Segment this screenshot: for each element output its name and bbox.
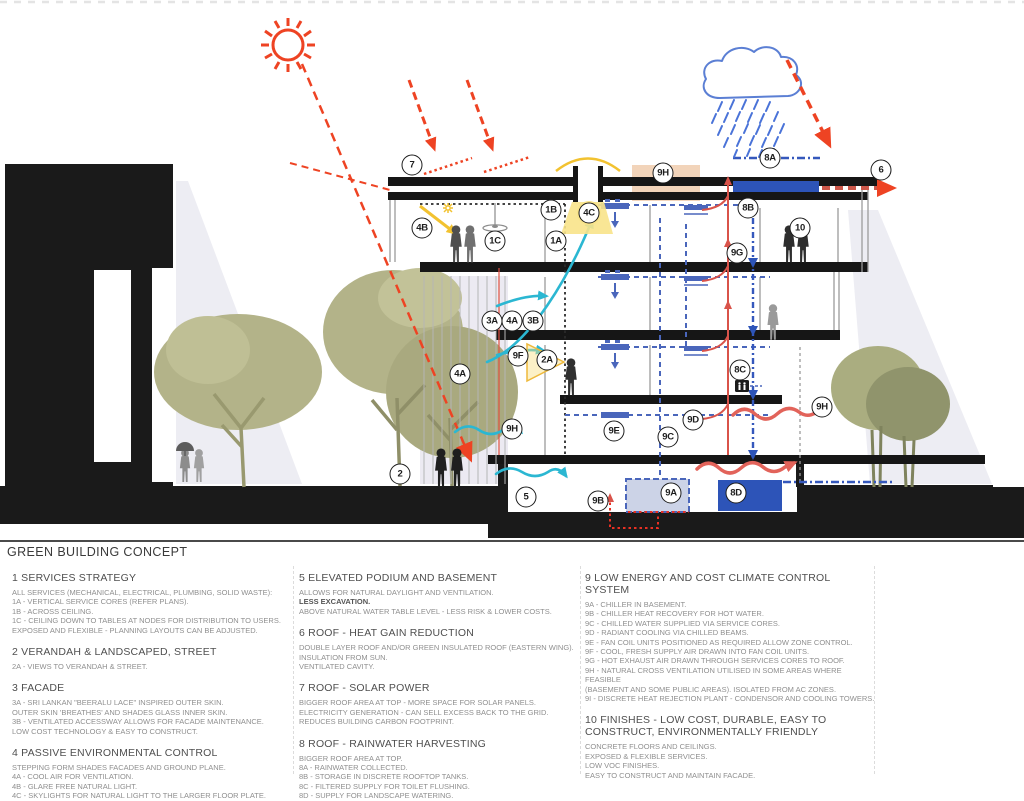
legend-section-heading: 7 ROOF - SOLAR POWER bbox=[299, 682, 579, 694]
legend-line: 1A - VERTICAL SERVICE CORES (REFER PLANS… bbox=[12, 597, 292, 606]
rooftop-tank bbox=[733, 181, 819, 192]
legend-line: 4A - COOL AIR FOR VENTILATION. bbox=[12, 772, 292, 781]
callout-5: 5 bbox=[516, 487, 537, 508]
legend-section-heading: 9 LOW ENERGY AND COST CLIMATE CONTROL SY… bbox=[585, 572, 877, 596]
callout-9E: 9E bbox=[604, 421, 625, 442]
legend-section-heading: 10 FINISHES - LOW COST, DURABLE, EASY TO… bbox=[585, 714, 877, 738]
callout-2: 2 bbox=[390, 464, 411, 485]
sunbeam-roof-edge bbox=[290, 163, 390, 190]
legend-section-heading: 4 PASSIVE ENVIRONMENTAL CONTROL bbox=[12, 747, 292, 759]
legend-line: 1C - CEILING DOWN TO TABLES AT NODES FOR… bbox=[12, 616, 292, 625]
legend-line: 8A - RAINWATER COLLECTED. bbox=[299, 763, 579, 772]
legend-line: 2A - VIEWS TO VERANDAH & STREET. bbox=[12, 662, 292, 671]
callout-4C: 4C bbox=[579, 203, 600, 224]
ceiling-fan-icon bbox=[483, 203, 507, 231]
callout-9F: 9F bbox=[508, 346, 529, 367]
legend-line: DOUBLE LAYER ROOF AND/OR GREEN INSULATED… bbox=[299, 643, 579, 652]
legend-section-heading: 5 ELEVATED PODIUM AND BASEMENT bbox=[299, 572, 579, 584]
callout-2A: 2A bbox=[537, 350, 558, 371]
solar-panel-arrows bbox=[409, 80, 530, 174]
legend-col-1: 5 ELEVATED PODIUM AND BASEMENTALLOWS FOR… bbox=[299, 561, 579, 801]
callout-9D: 9D bbox=[683, 410, 704, 431]
callout-1B: 1B bbox=[541, 200, 562, 221]
callout-4A: 4A bbox=[502, 311, 523, 332]
person-icon bbox=[450, 225, 461, 262]
legend-line: 3B - VENTILATED ACCESSWAY ALLOWS FOR FAC… bbox=[12, 717, 292, 726]
legend-line: 9B - CHILLER HEAT RECOVERY FOR HOT WATER… bbox=[585, 609, 877, 618]
legend-line: EXPOSED AND FLEXIBLE - PLANNING LAYOUTS … bbox=[12, 626, 292, 635]
hot-exhaust-system bbox=[702, 178, 728, 455]
callout-6: 6 bbox=[871, 160, 892, 181]
legend-section: 10 FINISHES - LOW COST, DURABLE, EASY TO… bbox=[585, 714, 877, 780]
legend-line: (BASEMENT AND SOME PUBLIC AREAS). ISOLAT… bbox=[585, 685, 877, 694]
legend-section: 7 ROOF - SOLAR POWERBIGGER ROOF AREA AT … bbox=[299, 682, 579, 726]
sun-icon bbox=[261, 18, 315, 72]
callout-9H: 9H bbox=[502, 419, 523, 440]
callout-8C: 8C bbox=[730, 360, 751, 381]
adjacent-building bbox=[5, 164, 173, 524]
callout-9B: 9B bbox=[588, 491, 609, 512]
legend-line: EXPOSED & FLEXIBLE SERVICES. bbox=[585, 752, 877, 761]
legend-line: 8D - SUPPLY FOR LANDSCAPE WATERING. bbox=[299, 791, 579, 800]
legend-section: 1 SERVICES STRATEGYALL SERVICES (MECHANI… bbox=[12, 572, 292, 635]
legend-col-2: 9 LOW ENERGY AND COST CLIMATE CONTROL SY… bbox=[585, 561, 877, 780]
legend-line: 3A - SRI LANKAN "BEERALU LACE" INSPIRED … bbox=[12, 698, 292, 707]
rain-cloud-icon bbox=[704, 47, 801, 98]
callout-9H: 9H bbox=[812, 397, 833, 418]
callout-10: 10 bbox=[790, 218, 811, 239]
legend-line: 9C - CHILLED WATER SUPPLIED VIA SERVICE … bbox=[585, 619, 877, 628]
callout-8A: 8A bbox=[760, 148, 781, 169]
legend-line: 9F - COOL, FRESH SUPPLY AIR DRAWN INTO F… bbox=[585, 647, 877, 656]
callout-8B: 8B bbox=[738, 198, 759, 219]
legend-line: ABOVE NATURAL WATER TABLE LEVEL - LESS R… bbox=[299, 607, 579, 616]
legend-line: 9D - RADIANT COOLING VIA CHILLED BEAMS. bbox=[585, 628, 877, 637]
legend-line: 1B - ACROSS CEILING. bbox=[12, 607, 292, 616]
legend-line: 4C - SKYLIGHTS FOR NATURAL LIGHT TO THE … bbox=[12, 791, 292, 800]
legend-line: VENTILATED CAVITY. bbox=[299, 662, 579, 671]
legend-line: LESS EXCAVATION. bbox=[299, 597, 579, 606]
legend-line: 4B - GLARE FREE NATURAL LIGHT. bbox=[12, 782, 292, 791]
legend-line: 8C - FILTERED SUPPLY FOR TOILET FLUSHING… bbox=[299, 782, 579, 791]
legend-section: 4 PASSIVE ENVIRONMENTAL CONTROLSTEPPING … bbox=[12, 747, 292, 801]
legend-line: 9E - FAN COIL UNITS POSITIONED AS REQUIR… bbox=[585, 638, 877, 647]
legend-line: REDUCES BUILDING CARBON FOOTPRINT. bbox=[299, 717, 579, 726]
legend-line: CONCRETE FLOORS AND CEILINGS. bbox=[585, 742, 877, 751]
legend-section-heading: 2 VERANDAH & LANDSCAPED, STREET bbox=[12, 646, 292, 658]
callout-1A: 1A bbox=[546, 231, 567, 252]
legend-line: 8B - STORAGE IN DISCRETE ROOFTOP TANKS. bbox=[299, 772, 579, 781]
callout-1C: 1C bbox=[485, 231, 506, 252]
green-building-diagram-page: GREEN BUILDING CONCEPT 1 SERVICES STRATE… bbox=[0, 0, 1024, 782]
legend-line: OUTER SKIN 'BREATHES' AND SHADES GLASS I… bbox=[12, 708, 292, 717]
callout-9G: 9G bbox=[727, 243, 748, 264]
building-section-diagram bbox=[0, 0, 1024, 542]
callout-4A: 4A bbox=[450, 364, 471, 385]
legend-section: 6 ROOF - HEAT GAIN REDUCTIONDOUBLE LAYER… bbox=[299, 627, 579, 671]
page-title: GREEN BUILDING CONCEPT bbox=[7, 545, 187, 559]
person-icon bbox=[565, 358, 576, 395]
legend-section: 3 FACADE3A - SRI LANKAN "BEERALU LACE" I… bbox=[12, 682, 292, 736]
callout-9C: 9C bbox=[658, 427, 679, 448]
legend-line: BIGGER ROOF AREA AT TOP. bbox=[299, 754, 579, 763]
sunbeam-to-ground bbox=[302, 64, 470, 458]
legend-line: ALL SERVICES (MECHANICAL, ELECTRICAL, PL… bbox=[12, 588, 292, 597]
legend-section: 8 ROOF - RAINWATER HARVESTINGBIGGER ROOF… bbox=[299, 738, 579, 801]
legend-divider bbox=[874, 566, 875, 774]
legend-col-0: 1 SERVICES STRATEGYALL SERVICES (MECHANI… bbox=[12, 561, 292, 801]
legend-line: 9G - HOT EXHAUST AIR DRAWN THROUGH SERVI… bbox=[585, 656, 877, 665]
legend-section-heading: 3 FACADE bbox=[12, 682, 292, 694]
legend-divider bbox=[293, 566, 294, 774]
callout-9H: 9H bbox=[653, 163, 674, 184]
legend-divider bbox=[580, 566, 581, 774]
title-rule bbox=[0, 540, 1024, 542]
toilet-icon bbox=[735, 380, 762, 392]
legend-section-heading: 8 ROOF - RAINWATER HARVESTING bbox=[299, 738, 579, 750]
callout-7: 7 bbox=[402, 155, 423, 176]
legend-line: LOW COST TECHNOLOGY & EASY TO CONSTRUCT. bbox=[12, 727, 292, 736]
legend-section: 2 VERANDAH & LANDSCAPED, STREET2A - VIEW… bbox=[12, 646, 292, 671]
legend-section-heading: 6 ROOF - HEAT GAIN REDUCTION bbox=[299, 627, 579, 639]
person-icon bbox=[464, 225, 475, 262]
skylight-arc-arrow bbox=[556, 159, 620, 172]
callout-3A: 3A bbox=[482, 311, 503, 332]
callout-3B: 3B bbox=[523, 311, 544, 332]
legend-section-heading: 1 SERVICES STRATEGY bbox=[12, 572, 292, 584]
legend-section: 5 ELEVATED PODIUM AND BASEMENTALLOWS FOR… bbox=[299, 572, 579, 616]
legend-line: INSULATION FROM SUN. bbox=[299, 653, 579, 662]
legend-section: 9 LOW ENERGY AND COST CLIMATE CONTROL SY… bbox=[585, 572, 877, 703]
legend-line: STEPPING FORM SHADES FACADES AND GROUND … bbox=[12, 763, 292, 772]
legend-line: ALLOWS FOR NATURAL DAYLIGHT AND VENTILAT… bbox=[299, 588, 579, 597]
legend-line: 9H - NATURAL CROSS VENTILATION UTILISED … bbox=[585, 666, 877, 685]
legend-line: LOW VOC FINISHES. bbox=[585, 761, 877, 770]
legend-line: 9I - DISCRETE HEAT REJECTION PLANT - CON… bbox=[585, 694, 877, 703]
callout-4B: 4B bbox=[412, 218, 433, 239]
legend-line: EASY TO CONSTRUCT AND MAINTAIN FACADE. bbox=[585, 771, 877, 780]
callout-9A: 9A bbox=[661, 483, 682, 504]
legend-line: 9A - CHILLER IN BASEMENT. bbox=[585, 600, 877, 609]
callout-8D: 8D bbox=[726, 483, 747, 504]
legend-line: BIGGER ROOF AREA AT TOP - MORE SPACE FOR… bbox=[299, 698, 579, 707]
legend-line: ELECTRICITY GENERATION - CAN SELL EXCESS… bbox=[299, 708, 579, 717]
